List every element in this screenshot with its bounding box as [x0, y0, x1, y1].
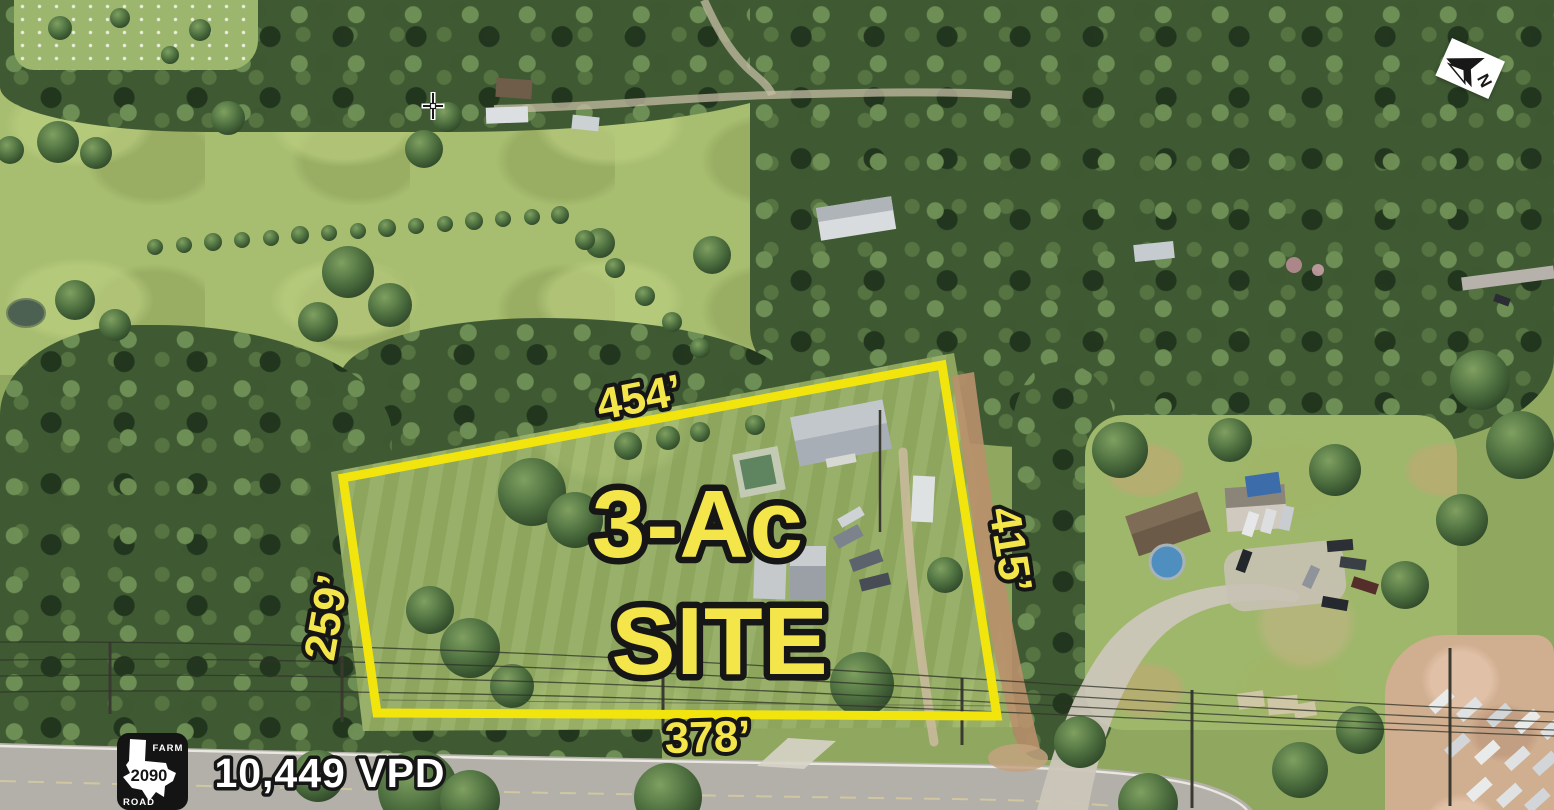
tree	[830, 652, 894, 716]
boat	[837, 506, 865, 528]
tree	[745, 415, 765, 435]
crosshair-cursor-icon	[421, 92, 445, 125]
parked-car	[1532, 751, 1554, 777]
aerial-site-map: 454’ 415’ 259’ 378’ 3-Ac SITE 10,449 VPD…	[0, 0, 1554, 810]
texas-state-shape	[123, 739, 176, 801]
vehicle	[833, 524, 864, 549]
flowering-tree	[1286, 257, 1302, 273]
tree	[405, 130, 443, 168]
round-pool	[1150, 545, 1184, 579]
house	[1133, 241, 1175, 262]
traffic-count-label: 10,449 VPD	[214, 750, 445, 796]
north-arrow-icon: N	[1435, 38, 1505, 99]
tree	[690, 422, 710, 442]
site-label-line1: 3-Ac	[592, 471, 804, 578]
clearing-vehicles	[1236, 505, 1379, 611]
tree	[1486, 411, 1554, 479]
tree	[189, 19, 211, 41]
parcel-house-porch	[826, 453, 857, 468]
concrete-apron	[757, 738, 836, 769]
north-arrow-blade	[1445, 63, 1470, 83]
top-road	[494, 92, 1012, 109]
mobile-home	[486, 106, 529, 123]
dirt-road-east	[952, 372, 1040, 755]
shed	[753, 550, 787, 599]
tree	[1054, 716, 1106, 768]
tree	[693, 236, 731, 274]
tree	[1272, 742, 1328, 798]
tree	[1118, 773, 1178, 810]
car	[1321, 596, 1349, 611]
forest-left	[0, 325, 392, 757]
tree	[298, 302, 338, 342]
tree	[322, 246, 374, 298]
pool-deck	[732, 446, 786, 498]
tree	[1309, 444, 1361, 496]
structures	[7, 78, 1554, 810]
tree	[99, 309, 131, 341]
mobile-home	[816, 196, 896, 240]
pasture-fields	[0, 55, 790, 375]
tree	[1092, 422, 1148, 478]
car	[1260, 508, 1277, 534]
utility-poles	[110, 410, 1450, 808]
tree	[161, 46, 179, 64]
tree	[406, 586, 454, 634]
car	[1242, 511, 1260, 537]
tree	[927, 557, 963, 593]
trees	[0, 8, 1554, 810]
tree	[368, 283, 412, 327]
neighbor-house-white-roof	[1225, 484, 1286, 508]
tree	[1336, 706, 1384, 754]
stone-pads	[1237, 690, 1317, 719]
tree	[1208, 418, 1252, 462]
road-center-line	[0, 781, 1148, 810]
map-overlay: 454’ 415’ 259’ 378’ 3-Ac SITE 10,449 VPD	[0, 0, 1554, 810]
parcel-house-roof-light	[790, 399, 887, 440]
vehicle	[849, 549, 884, 572]
parcel-boundary	[343, 365, 997, 716]
neighbor-house-brown-roof	[1125, 492, 1203, 535]
parked-car	[1504, 746, 1531, 772]
tree	[37, 121, 79, 163]
car	[1327, 539, 1354, 552]
parking-lot-cars	[1428, 689, 1554, 810]
parked-car	[1540, 715, 1554, 741]
flowering-tree	[1312, 264, 1324, 276]
tree-row	[147, 206, 710, 358]
parcel-driveway	[903, 452, 934, 742]
fence-line	[382, 700, 1000, 706]
car	[1302, 565, 1320, 589]
site-label-line2: SITE	[611, 588, 828, 695]
rv-trailer	[911, 475, 935, 522]
tree	[634, 763, 702, 810]
park-clearing-top-left	[14, 0, 258, 70]
tree	[378, 750, 458, 810]
tree	[585, 228, 615, 258]
pond	[7, 299, 45, 327]
tree	[80, 137, 112, 169]
tree	[292, 750, 344, 802]
dirt-apron	[988, 744, 1048, 772]
dimension-label-right: 415’	[979, 504, 1041, 596]
forest-above-parcel	[340, 318, 792, 480]
blue-tarp	[1245, 472, 1282, 498]
tree	[440, 618, 500, 678]
car	[1351, 576, 1379, 594]
neighbor-house-brown	[1125, 492, 1211, 556]
shed	[571, 115, 599, 132]
road-edge-line	[0, 746, 1247, 810]
parked-car	[1524, 788, 1551, 810]
tree	[211, 101, 245, 135]
parked-car	[1514, 709, 1541, 735]
tree	[440, 770, 500, 810]
right-edge-road	[1462, 272, 1554, 284]
tree	[547, 492, 603, 548]
parcel-house-roof	[790, 399, 892, 466]
parked-car	[1466, 777, 1493, 803]
tree	[432, 102, 462, 132]
shield-word-road: ROAD	[123, 797, 155, 808]
shield-route-number: 2090	[131, 767, 168, 785]
parked-car	[1456, 697, 1483, 723]
roads	[0, 0, 1554, 810]
car	[1279, 505, 1295, 531]
car	[1236, 549, 1253, 573]
forest-right	[750, 0, 1554, 448]
dimension-label-bottom: 378’	[664, 712, 751, 763]
dimension-label-left: 259’	[295, 571, 358, 664]
mobile-home-roof-stripe	[816, 196, 893, 222]
shield-word-farm: FARM	[153, 743, 184, 754]
north-arrow-dart	[1440, 44, 1485, 87]
neighbor-house-white	[1225, 484, 1288, 532]
tree	[1381, 561, 1429, 609]
tree	[0, 136, 24, 164]
tree	[110, 8, 130, 28]
annotations: 454’ 415’ 259’ 378’ 3-Ac SITE 10,449 VPD	[214, 365, 1041, 796]
forest-strip-east-of-parcel	[1012, 362, 1114, 760]
parked-car	[1486, 703, 1513, 729]
tree	[48, 16, 72, 40]
neighbor-clearing	[1085, 415, 1457, 730]
shed-roof-light	[790, 546, 826, 566]
power-lines	[0, 642, 1554, 736]
tree	[498, 458, 566, 526]
tree	[1450, 350, 1510, 410]
house	[495, 78, 532, 99]
dirt-parking-lot	[1385, 635, 1554, 810]
shed	[790, 546, 826, 600]
car	[1493, 294, 1511, 307]
parcel-lawn	[0, 0, 1554, 810]
tree	[614, 432, 642, 460]
top-road-entry	[704, 0, 772, 95]
gravel-parking-pad	[1222, 539, 1348, 613]
tree	[1436, 494, 1488, 546]
parked-car	[1428, 689, 1455, 715]
parked-car	[1444, 733, 1471, 759]
texas-fm-road-shield-icon: FARM 2090 ROAD	[117, 733, 188, 810]
tree	[656, 426, 680, 450]
gravel-driveway	[1037, 584, 1299, 810]
tree	[490, 664, 534, 708]
parked-car	[1474, 740, 1501, 766]
car	[1339, 556, 1366, 571]
main-road	[0, 743, 1253, 810]
pool-water	[739, 454, 776, 490]
forest-top	[0, 0, 820, 132]
tree	[55, 280, 95, 320]
forest-below-parcel	[372, 695, 662, 767]
parked-car	[1496, 783, 1523, 809]
dimension-label-top: 454’	[593, 366, 686, 430]
north-arrow-letter: N	[1473, 71, 1496, 91]
vehicle	[859, 573, 891, 592]
